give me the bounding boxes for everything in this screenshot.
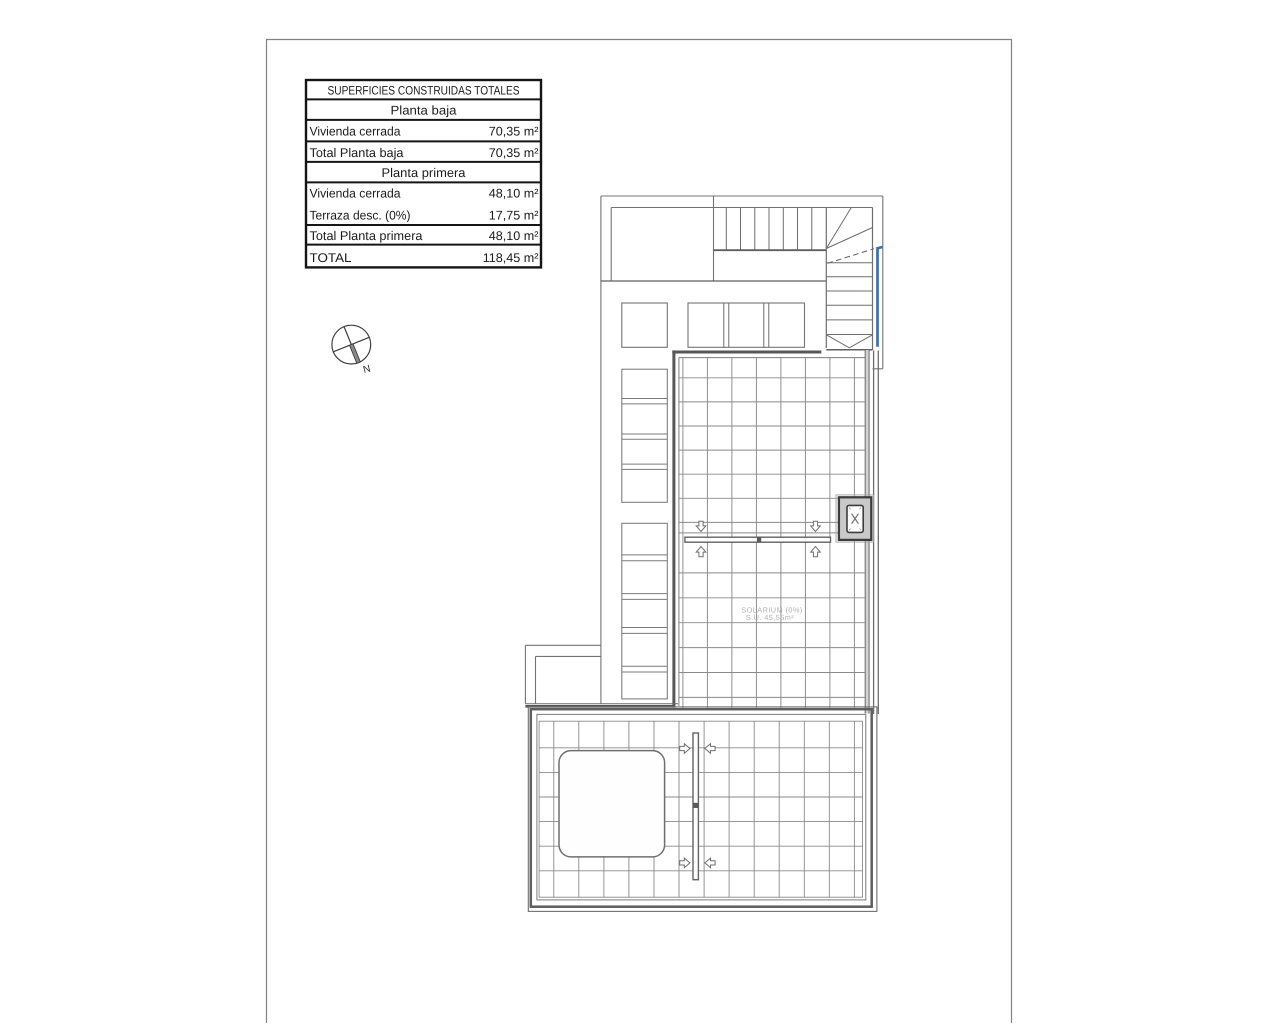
svg-text:70,35 m²: 70,35 m² (489, 125, 539, 139)
svg-text:Terraza desc. (0%): Terraza desc. (0%) (310, 208, 411, 222)
svg-text:Planta baja: Planta baja (391, 104, 457, 118)
svg-text:S.U. 45,55m²: S.U. 45,55m² (746, 613, 794, 622)
svg-text:118,45 m²: 118,45 m² (483, 251, 539, 265)
svg-text:Vivienda cerrada: Vivienda cerrada (310, 125, 401, 139)
svg-text:70,35 m²: 70,35 m² (489, 146, 539, 160)
svg-text:48,10 m²: 48,10 m² (489, 229, 539, 243)
svg-text:Planta primera: Planta primera (382, 166, 466, 180)
svg-text:Total Planta baja: Total Planta baja (310, 146, 404, 160)
svg-text:SUPERFICIES CONSTRUIDAS TOTALE: SUPERFICIES CONSTRUIDAS TOTALES (328, 83, 520, 97)
svg-text:48,10 m²: 48,10 m² (489, 187, 539, 201)
svg-text:TOTAL: TOTAL (310, 251, 352, 265)
svg-text:Total Planta primera: Total Planta primera (310, 229, 423, 243)
svg-text:Vivienda cerrada: Vivienda cerrada (310, 187, 401, 201)
svg-text:17,75 m²: 17,75 m² (489, 208, 539, 222)
